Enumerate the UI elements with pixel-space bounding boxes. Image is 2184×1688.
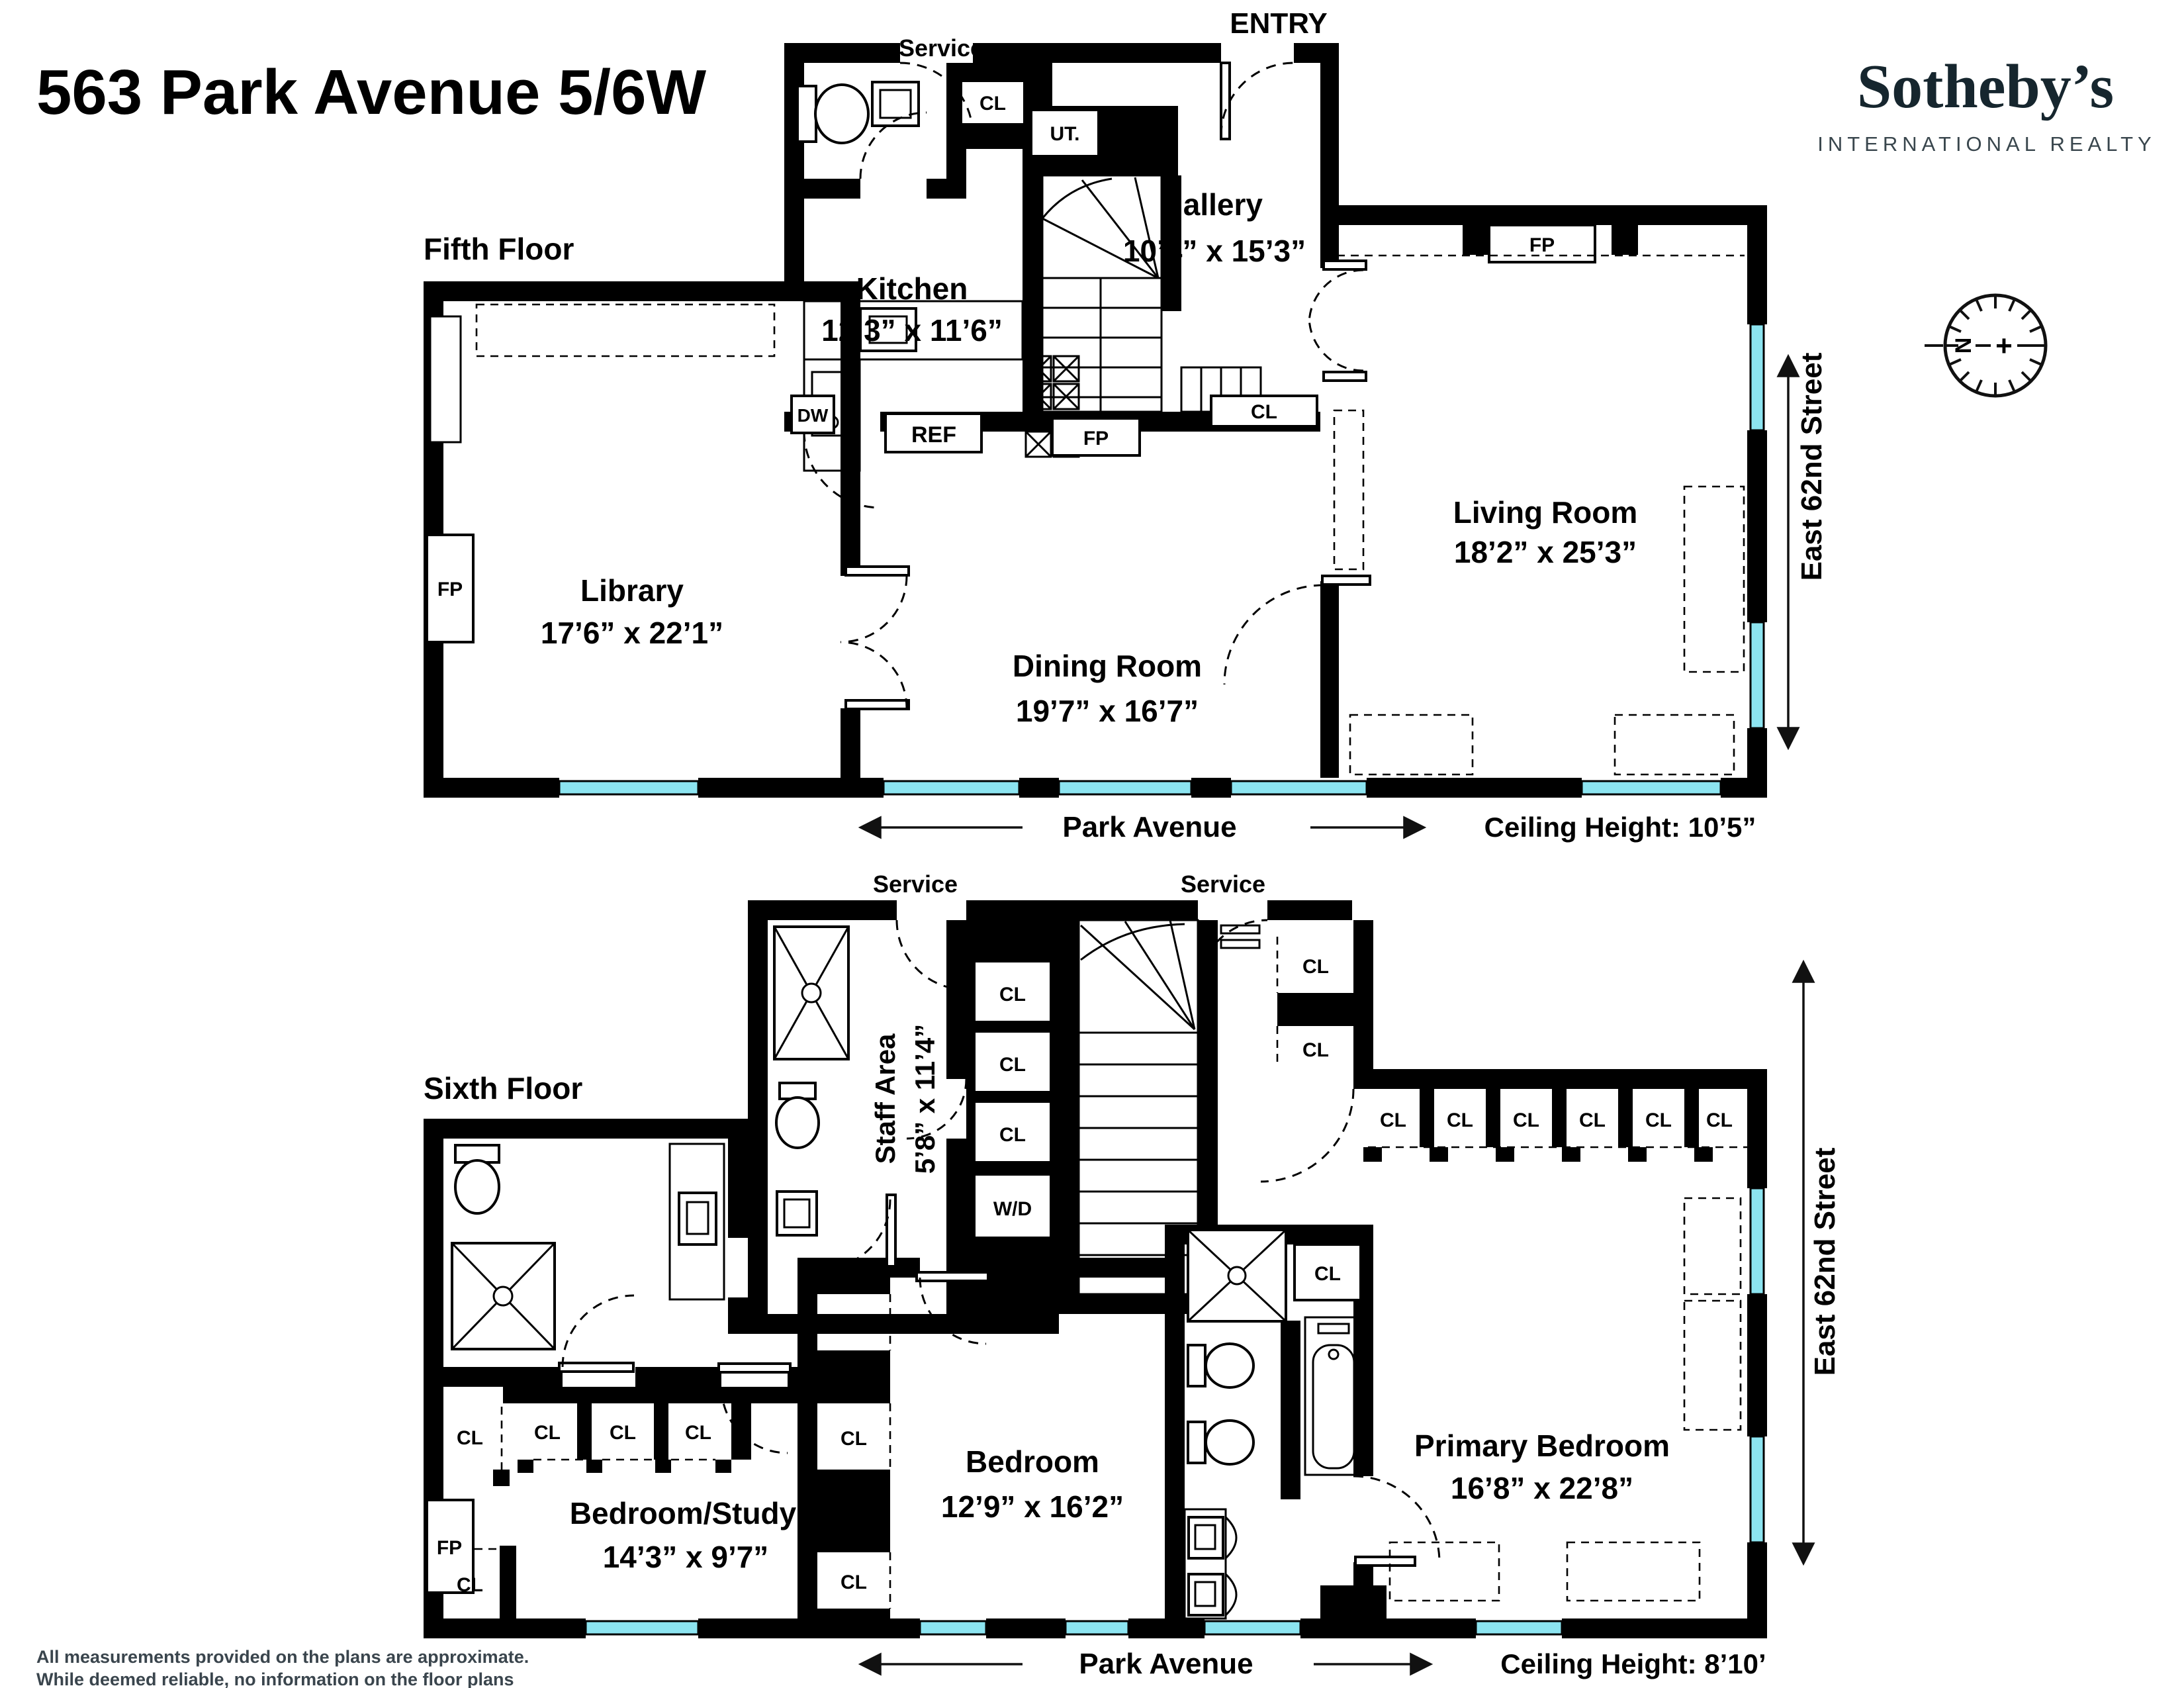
park-avenue-label-fifth: Park Avenue [1062, 811, 1236, 843]
staff-bath [774, 927, 848, 1235]
ceiling-height-sixth: Ceiling Height: 8’10’ [1500, 1648, 1766, 1679]
primary-bedroom-dims: 16’8” x 22’8” [1451, 1471, 1633, 1505]
living-dims: 18’2” x 25’3” [1454, 535, 1637, 569]
entry-label: ENTRY [1230, 7, 1328, 40]
washer-dryer-label: W/D [993, 1198, 1032, 1220]
closet-label: CL [979, 93, 1006, 115]
living-fireplace-label: FP [1529, 234, 1555, 256]
fifth-floor-heading: Fifth Floor [424, 232, 574, 266]
compass-plus-label: + [1995, 330, 2013, 362]
library-name: Library [580, 573, 684, 608]
dining-name: Dining Room [1013, 649, 1202, 683]
park-avenue-label-sixth: Park Avenue [1079, 1648, 1253, 1680]
park-avenue-sixth: Park Avenue [862, 1648, 1430, 1680]
closet-label: CL [1302, 1039, 1329, 1061]
dining-closet-label: CL [1251, 401, 1277, 423]
closet-label: CL [841, 1313, 867, 1335]
service-label-sixth-right: Service [1181, 870, 1265, 898]
closet-label: CL [999, 1124, 1026, 1146]
service-hall-closets [1221, 925, 1277, 1068]
closet-label: CL [841, 1428, 867, 1450]
study-dims: 14’3” x 9’7” [603, 1540, 769, 1574]
closet-label: CL [685, 1422, 711, 1444]
east-62nd-label-fifth: East 62nd Street [1796, 352, 1828, 581]
closet-label: CL [1314, 1263, 1341, 1285]
fifth-floor-plan: Fifth Floor [424, 7, 1828, 843]
service-label-sixth-left: Service [873, 870, 958, 898]
sink-icon [777, 1192, 817, 1235]
bedroom-dims: 12’9” x 16’2” [941, 1489, 1124, 1524]
primary-bedroom-name: Primary Bedroom [1414, 1429, 1670, 1463]
page-title: 563 Park Avenue 5/6W [36, 57, 706, 128]
sixth-floor-plan: Sixth Floor [424, 870, 1841, 1680]
closet-label: CL [999, 1054, 1026, 1076]
kitchen-dims: 12’3” x 11’6” [821, 313, 1003, 348]
brand-tagline: INTERNATIONAL REALTY [1817, 132, 2156, 156]
closet-label: CL [1513, 1109, 1539, 1131]
kitchen-name: Kitchen [856, 271, 968, 306]
compass-north-label: N [1951, 338, 1976, 354]
dining-dims: 19’7” x 16’7” [1016, 694, 1199, 728]
closet-label: CL [1380, 1109, 1406, 1131]
study-name: Bedroom/Study [570, 1496, 797, 1530]
sixth-floor-heading: Sixth Floor [424, 1071, 582, 1105]
staff-area-name: Staff Area [870, 1033, 901, 1164]
fifth-label-boxes [427, 81, 1595, 642]
sink-icon [679, 1193, 716, 1244]
closet-label: CL [1447, 1109, 1473, 1131]
refrigerator-label: REF [911, 422, 956, 447]
toilet-icon [1188, 1345, 1205, 1386]
disclaimer: All measurements provided on the plans a… [36, 1647, 529, 1688]
library-radiator [430, 316, 461, 442]
closet-label: CL [1706, 1109, 1733, 1131]
study-fireplace-label: FP [437, 1537, 462, 1559]
toilet-icon [797, 86, 816, 142]
closet-label: CL [610, 1422, 636, 1444]
gallery-name: Gallery [1160, 187, 1263, 222]
closet-label: CL [534, 1422, 561, 1444]
floorplan-page: 563 Park Avenue 5/6W Sotheby’s INTERNATI… [0, 0, 2184, 1688]
service-label-fifth: Service [899, 34, 983, 62]
east-62nd-fifth: East 62nd Street [1788, 352, 1828, 747]
closet-label: CL [841, 1571, 867, 1593]
staff-area-dims: 5’8” x 11’4” [909, 1024, 940, 1174]
closet-label: CL [999, 984, 1026, 1006]
service-bath-fifth [797, 82, 919, 143]
park-avenue-fifth: Park Avenue [862, 811, 1423, 843]
bedroom-name: Bedroom [966, 1444, 1099, 1479]
northwest-bath [452, 1144, 724, 1349]
east-62nd-sixth: East 62nd Street [1803, 963, 1841, 1562]
sixth-dashed-details [1390, 1198, 1741, 1601]
floorplan-canvas: 563 Park Avenue 5/6W Sotheby’s INTERNATI… [0, 0, 2184, 1688]
primary-bath [1185, 1230, 1362, 1618]
closet-label: CL [1302, 956, 1329, 978]
gallery-dims: 10’4” x 15’3” [1123, 234, 1306, 268]
ceiling-height-fifth: Ceiling Height: 10’5” [1484, 812, 1756, 843]
disclaimer-line-2: While deemed reliable, no information on… [36, 1669, 514, 1688]
dining-fireplace-label: FP [1083, 428, 1109, 449]
compass-icon: N + [1925, 295, 2046, 396]
double-vanity [1185, 1509, 1236, 1618]
disclaimer-line-1: All measurements provided on the plans a… [36, 1647, 529, 1667]
closet-label: CL [1579, 1109, 1606, 1131]
library-dims: 17’6” x 22’1” [541, 616, 723, 650]
utility-label: UT. [1050, 123, 1080, 145]
living-name: Living Room [1453, 495, 1638, 530]
closet-label: CL [1645, 1109, 1672, 1131]
library-fireplace-label: FP [437, 579, 463, 600]
closet-label: CL [457, 1574, 483, 1596]
east-62nd-label-sixth: East 62nd Street [1809, 1147, 1841, 1376]
closet-label: CL [457, 1427, 483, 1449]
brand-wordmark: Sotheby’s [1857, 52, 2114, 121]
dishwasher-label: DW [797, 405, 829, 426]
bidet-icon [1188, 1422, 1205, 1463]
